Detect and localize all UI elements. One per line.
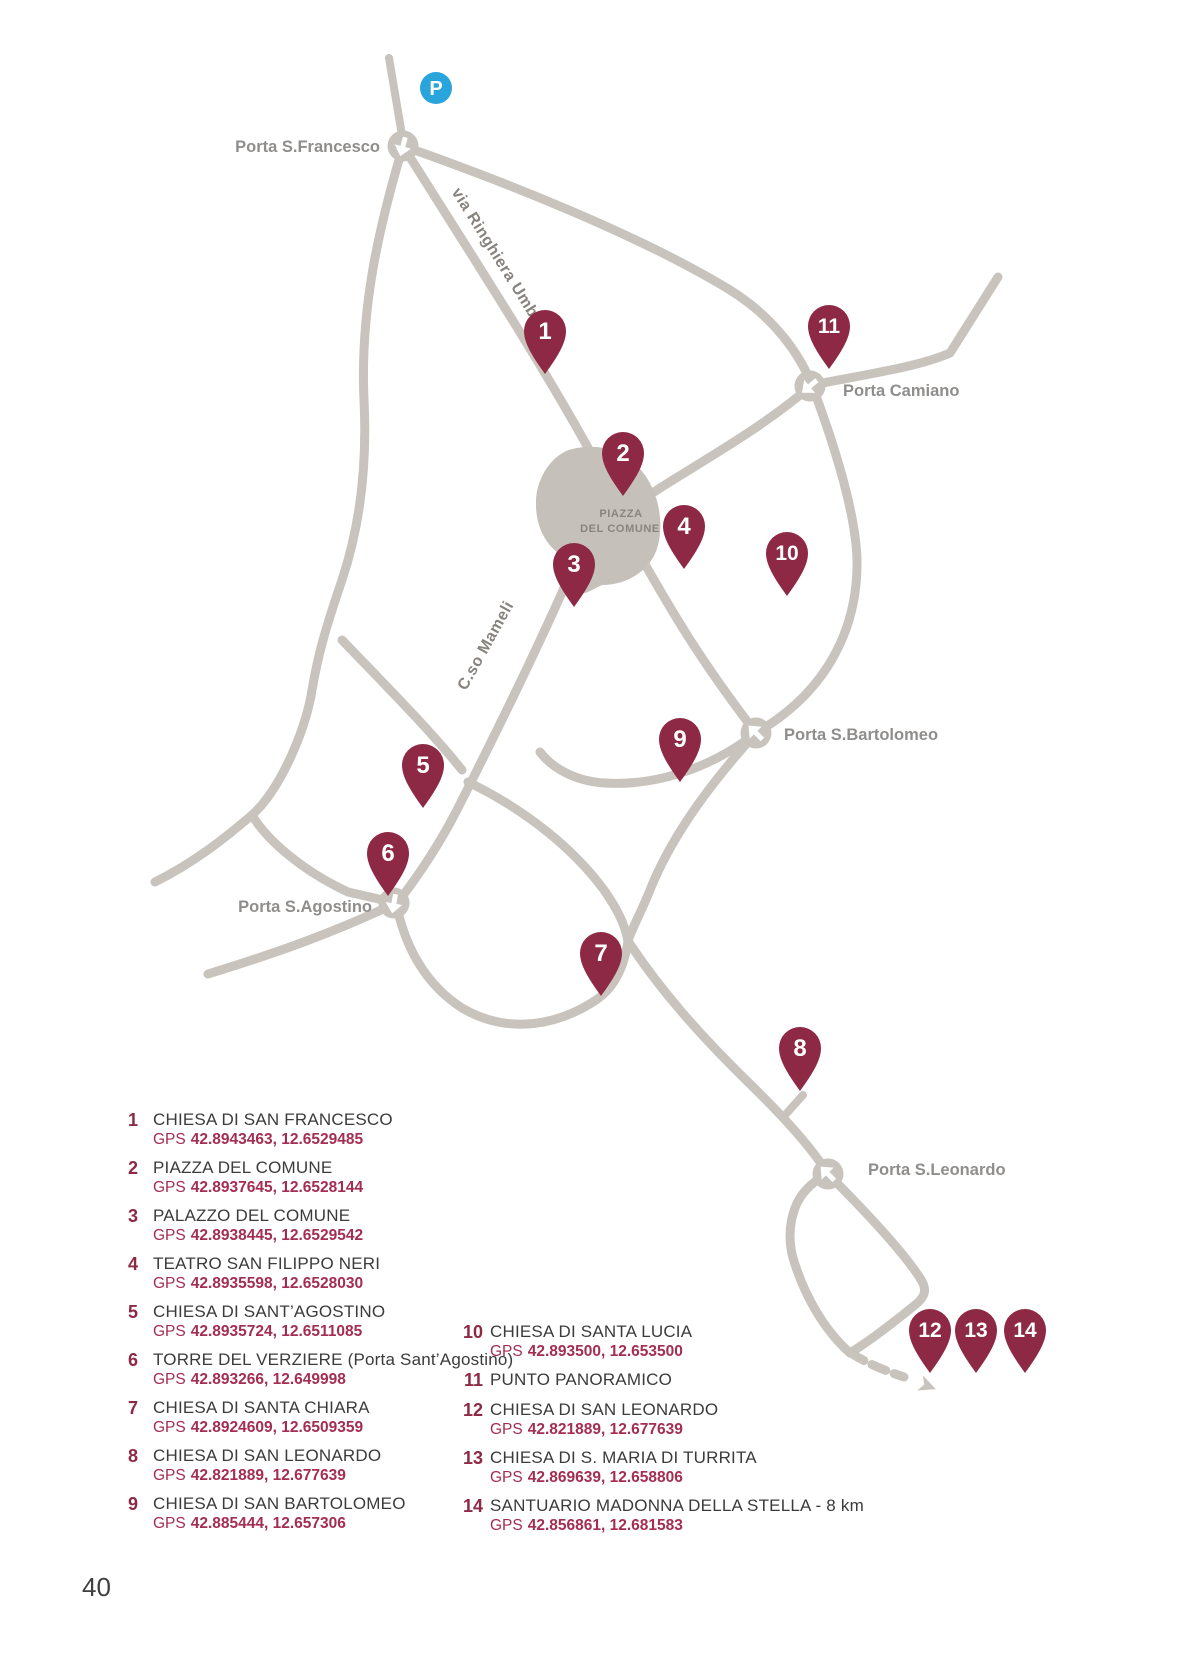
legend-item-number: 4 bbox=[108, 1254, 138, 1274]
map-pin-10: 10 bbox=[766, 532, 808, 596]
legend-item-gps: GPS42.821889, 12.677639 bbox=[445, 1420, 864, 1440]
legend-item-title: SANTUARIO MADONNA DELLA STELLA - 8 km bbox=[490, 1496, 864, 1516]
legend-item-title: CHIESA DI S. MARIA DI TURRITA bbox=[490, 1448, 757, 1468]
map-pin-11: 11 bbox=[808, 305, 850, 369]
legend-item-title: CHIESA DI SANTA LUCIA bbox=[490, 1322, 692, 1342]
legend-item-13: 13CHIESA DI S. MARIA DI TURRITA GPS42.86… bbox=[445, 1448, 864, 1488]
pin-number: 1 bbox=[538, 318, 551, 345]
road-north-wall bbox=[403, 146, 812, 385]
legend-item-number: 11 bbox=[445, 1370, 483, 1390]
legend-item-1: 1CHIESA DI SAN FRANCESCO GPS42.8943463, … bbox=[108, 1110, 513, 1150]
map-pin-12: 12 bbox=[909, 1309, 951, 1373]
legend-item-gps: GPS42.893500, 12.653500 bbox=[445, 1342, 864, 1362]
legend-item-number: 13 bbox=[445, 1448, 483, 1468]
pin-number: 10 bbox=[775, 542, 798, 565]
road-camiano-to-piazza bbox=[654, 385, 812, 492]
guide-map-page: { "page": { "number": "40" }, "map": { "… bbox=[0, 0, 1200, 1666]
legend-item-2: 2PIAZZA DEL COMUNE GPS42.8937645, 12.652… bbox=[108, 1158, 513, 1198]
legend-item-title: PIAZZA DEL COMUNE bbox=[153, 1158, 332, 1178]
road-via-ringhiera-umbra bbox=[403, 146, 592, 455]
legend-item-number: 1 bbox=[108, 1110, 138, 1130]
pin-number: 6 bbox=[381, 840, 394, 867]
legend-item-number: 14 bbox=[445, 1496, 483, 1516]
pin-number: 12 bbox=[918, 1319, 941, 1342]
road-exit-arrowhead bbox=[917, 1376, 939, 1397]
street-label-corso-mameli: C.so Mameli bbox=[455, 598, 518, 693]
street-label-via-ringhiera-umbra: via Ringhiera Umbra bbox=[448, 185, 550, 334]
legend-item-gps: GPS42.869639, 12.658806 bbox=[445, 1468, 864, 1488]
gate-label-porta-camiano: Porta Camiano bbox=[843, 382, 959, 400]
legend-item-title: CHIESA DI SANT’AGOSTINO bbox=[153, 1302, 385, 1322]
legend-item-title: TEATRO SAN FILIPPO NERI bbox=[153, 1254, 380, 1274]
road-block-diagonal bbox=[342, 640, 462, 770]
legend-item-title: CHIESA DI SAN LEONARDO bbox=[490, 1400, 718, 1420]
map-pin-14: 14 bbox=[1004, 1309, 1046, 1373]
legend-item-gps: GPS42.8935598, 12.6528030 bbox=[108, 1274, 513, 1294]
legend-item-number: 2 bbox=[108, 1158, 138, 1178]
pin-number: 4 bbox=[677, 513, 691, 540]
road-southwest-1 bbox=[155, 815, 252, 882]
gate-label-porta-s-francesco: Porta S.Francesco bbox=[235, 138, 380, 156]
parking-icon: P bbox=[420, 72, 452, 104]
legend-item-12: 12CHIESA DI SAN LEONARDO GPS42.821889, 1… bbox=[445, 1400, 864, 1440]
road-west-wall bbox=[252, 146, 403, 903]
legend-item-number: 7 bbox=[108, 1398, 138, 1418]
legend-item-title: PALAZZO DEL COMUNE bbox=[153, 1206, 350, 1226]
legend-item-10: 10CHIESA DI SANTA LUCIA GPS42.893500, 12… bbox=[445, 1322, 864, 1362]
map-pin-5: 5 bbox=[402, 744, 444, 808]
pin-number: 7 bbox=[594, 940, 607, 967]
legend-item-number: 3 bbox=[108, 1206, 138, 1226]
legend-item-3: 3PALAZZO DEL COMUNE GPS42.8938445, 12.65… bbox=[108, 1206, 513, 1246]
legend-item-title: PUNTO PANORAMICO bbox=[490, 1370, 672, 1390]
legend-item-title: CHIESA DI SAN FRANCESCO bbox=[153, 1110, 393, 1130]
pin-number: 8 bbox=[793, 1035, 806, 1062]
legend-item-gps: GPS42.856861, 12.681583 bbox=[445, 1516, 864, 1536]
page-number: 40 bbox=[82, 1572, 111, 1603]
legend-item-title: CHIESA DI SANTA CHIARA bbox=[153, 1398, 370, 1418]
pin-number: 13 bbox=[964, 1319, 987, 1342]
road-mameli-branch bbox=[468, 782, 628, 941]
legend-item-gps: GPS42.8938445, 12.6529542 bbox=[108, 1226, 513, 1246]
map-pin-1: 1 bbox=[524, 310, 566, 374]
legend-item-4: 4TEATRO SAN FILIPPO NERI GPS42.8935598, … bbox=[108, 1254, 513, 1294]
legend-item-14: 14SANTUARIO MADONNA DELLA STELLA - 8 km … bbox=[445, 1496, 864, 1536]
map-pin-6: 6 bbox=[367, 832, 409, 896]
pin-number: 9 bbox=[673, 726, 686, 753]
legend-item-gps: GPS42.8937645, 12.6528144 bbox=[108, 1178, 513, 1198]
map-pin-8: 8 bbox=[779, 1027, 821, 1091]
legend-item-11: 11PUNTO PANORAMICO bbox=[445, 1370, 864, 1390]
piazza-label-line1: PIAZZA bbox=[599, 508, 642, 520]
piazza-label-line2: DEL COMUNE bbox=[580, 523, 660, 535]
gate-label-porta-s-agostino: Porta S.Agostino bbox=[238, 898, 372, 916]
legend-item-number: 6 bbox=[108, 1350, 138, 1370]
pin-number: 14 bbox=[1013, 1319, 1037, 1342]
gate-label-porta-s-leonardo: Porta S.Leonardo bbox=[868, 1161, 1006, 1179]
legend-item-number: 12 bbox=[445, 1400, 483, 1420]
pin-number: 3 bbox=[567, 551, 580, 578]
road-pin8-connector bbox=[786, 1095, 803, 1114]
legend-item-gps: GPS42.8943463, 12.6529485 bbox=[108, 1130, 513, 1150]
parking-letter: P bbox=[429, 78, 442, 100]
legend-item-number: 9 bbox=[108, 1494, 138, 1514]
road-piazza-to-bartolomeo bbox=[638, 552, 756, 733]
pin-number: 11 bbox=[818, 315, 841, 338]
pin-number: 2 bbox=[616, 440, 629, 467]
gate-label-porta-s-bartolomeo: Porta S.Bartolomeo bbox=[784, 726, 938, 744]
legend-item-title: CHIESA DI SAN LEONARDO bbox=[153, 1446, 381, 1466]
legend-item-number: 5 bbox=[108, 1302, 138, 1322]
map-pin-13: 13 bbox=[955, 1309, 997, 1373]
pin-number: 5 bbox=[416, 752, 429, 779]
map-pin-4: 4 bbox=[663, 505, 705, 569]
legend-item-number: 10 bbox=[445, 1322, 483, 1342]
legend-item-number: 8 bbox=[108, 1446, 138, 1466]
legend-column-2: 10CHIESA DI SANTA LUCIA GPS42.893500, 12… bbox=[445, 1322, 864, 1544]
legend-item-title: CHIESA DI SAN BARTOLOMEO bbox=[153, 1494, 406, 1514]
